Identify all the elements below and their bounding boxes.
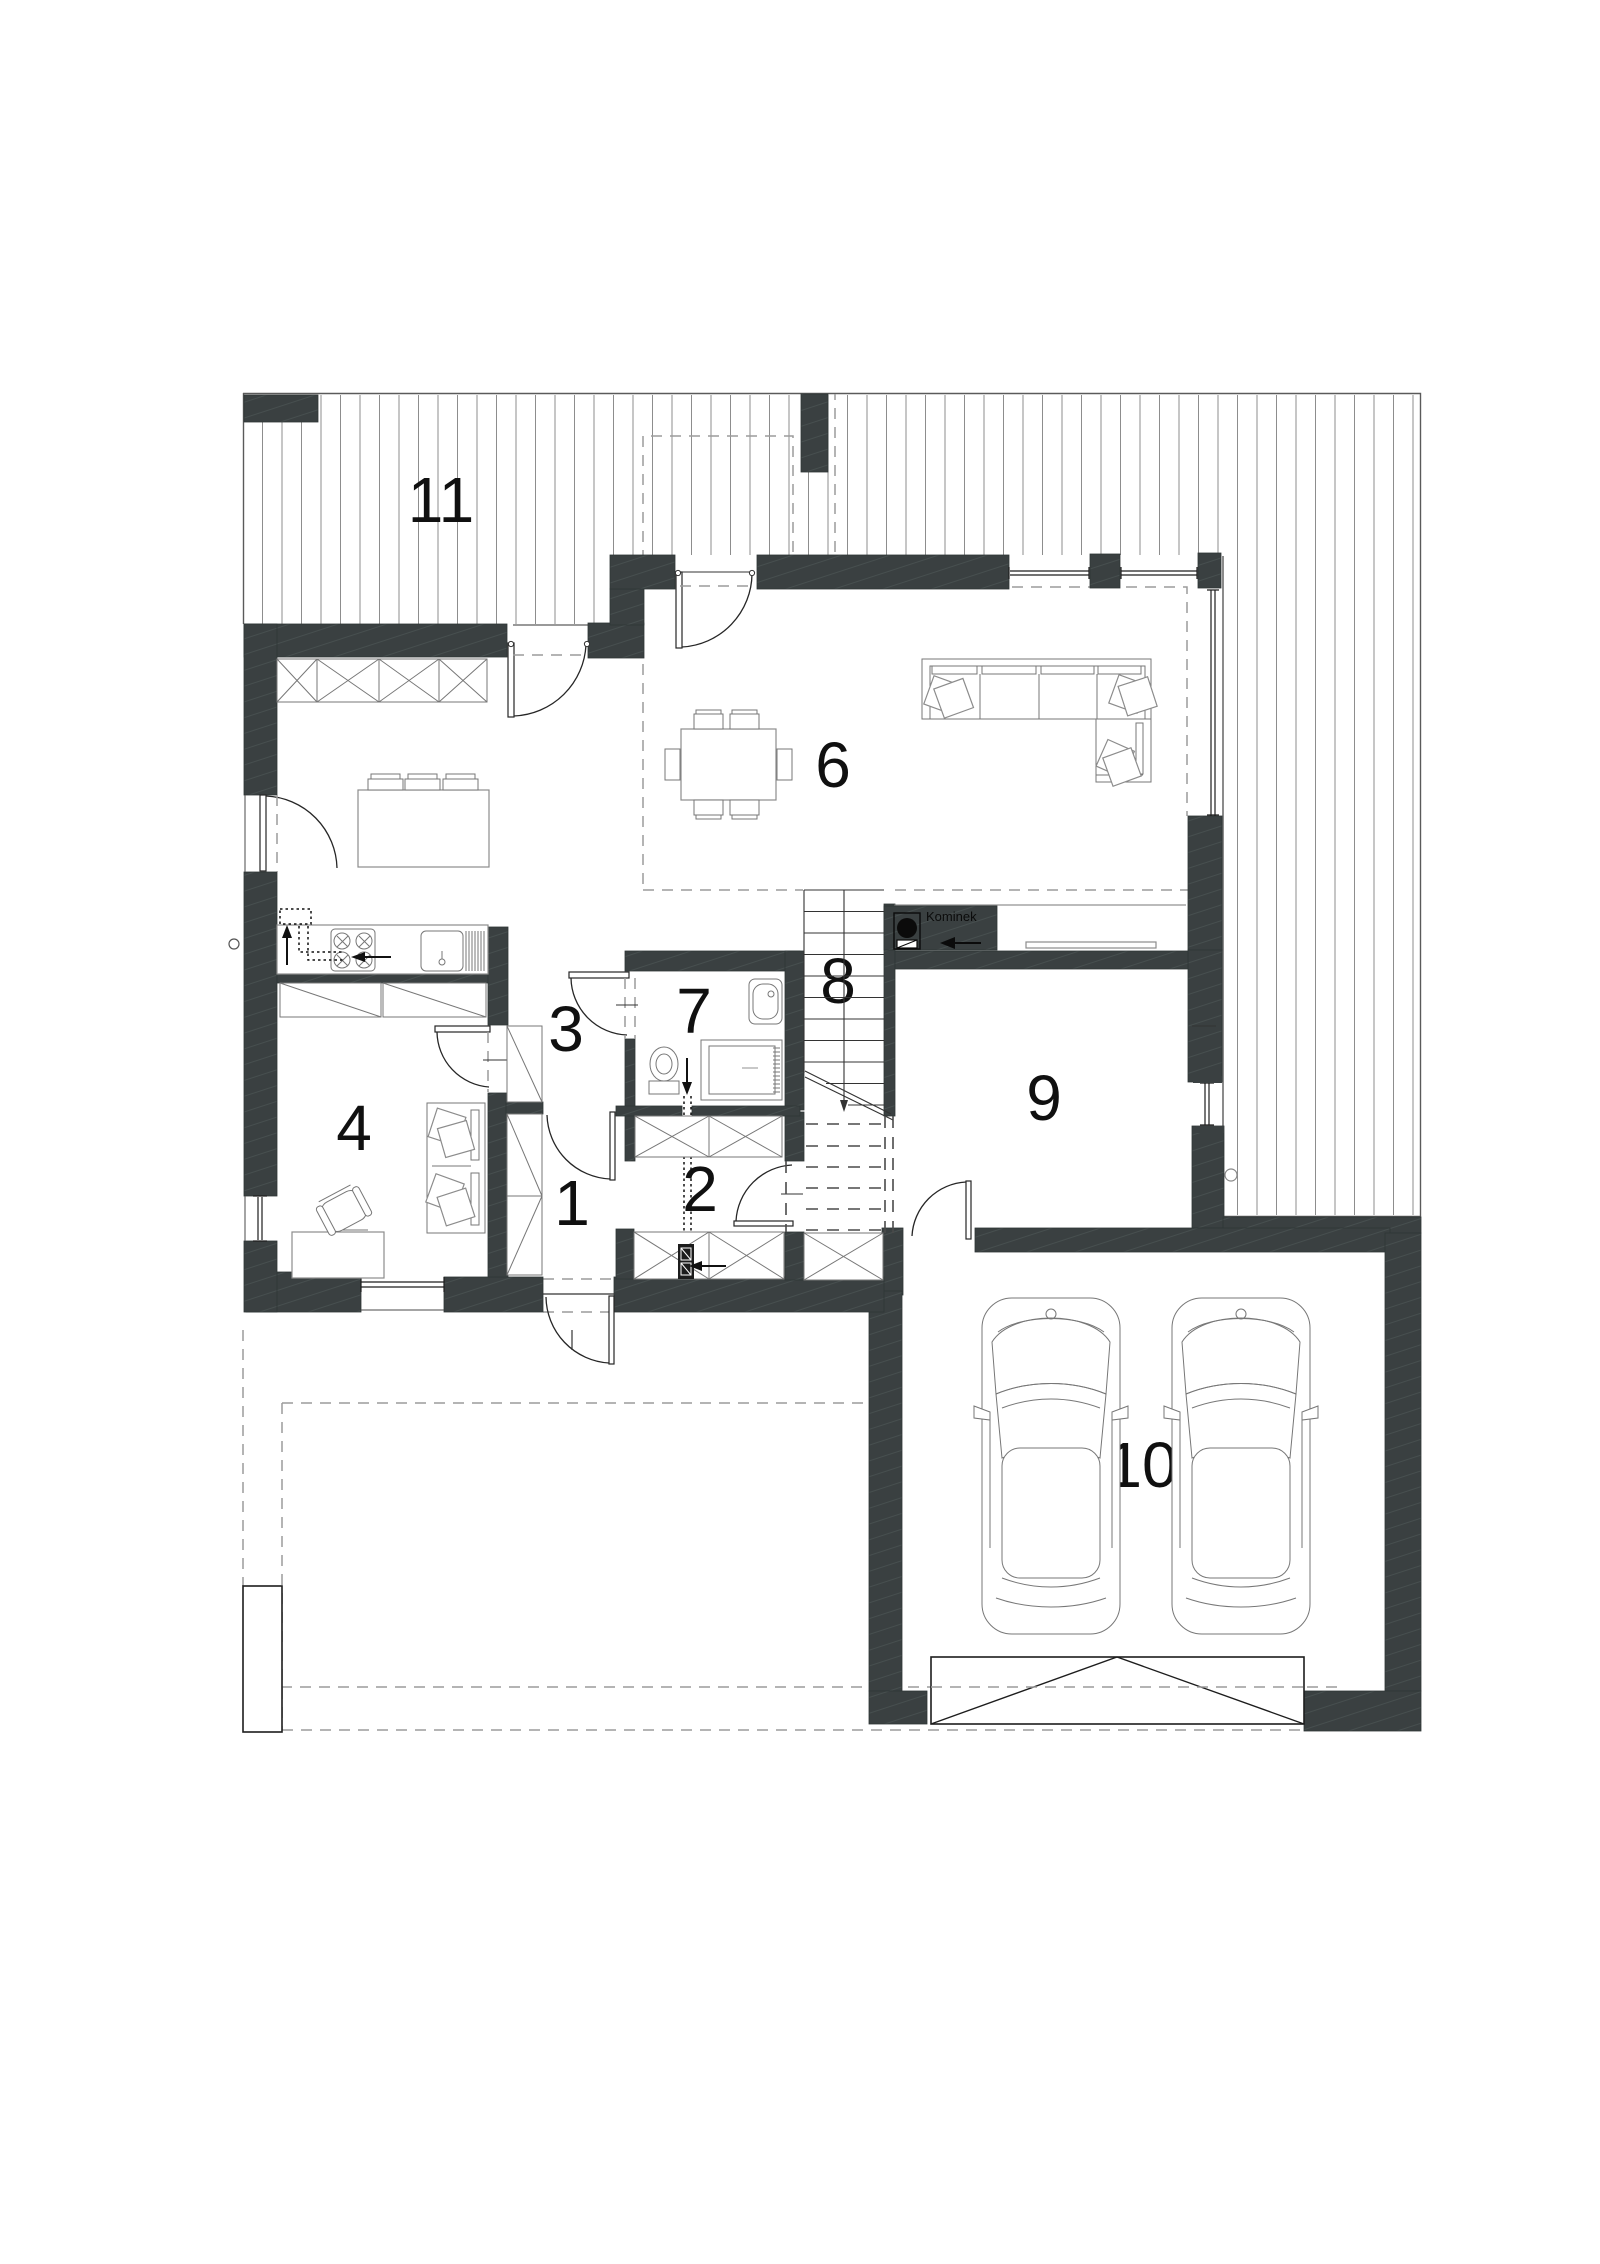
svg-text:6: 6	[815, 729, 851, 801]
svg-text:2: 2	[682, 1153, 718, 1225]
svg-text:4: 4	[336, 1092, 372, 1164]
svg-text:9: 9	[1026, 1062, 1062, 1134]
svg-text:8: 8	[820, 945, 856, 1017]
svg-text:3: 3	[548, 993, 584, 1065]
svg-text:Kominek: Kominek	[926, 909, 977, 924]
svg-text:7: 7	[676, 975, 712, 1047]
svg-text:11: 11	[408, 464, 474, 536]
svg-text:1: 1	[554, 1167, 590, 1239]
